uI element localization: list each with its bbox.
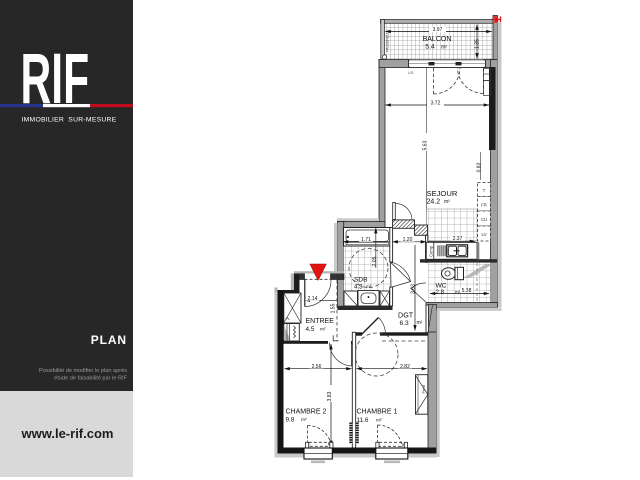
svg-text:Pend: Pend [422, 385, 426, 393]
svg-text:m²: m² [366, 284, 372, 289]
svg-text:m²: m² [441, 45, 447, 51]
svg-text:0.83: 0.83 [477, 162, 483, 172]
svg-text:SDB: SDB [354, 277, 368, 284]
svg-text:5.38: 5.38 [462, 288, 472, 294]
svg-text:Comp: Comp [429, 245, 434, 257]
svg-text:24.2: 24.2 [427, 199, 441, 206]
svg-text:2.05: 2.05 [372, 256, 378, 266]
svg-text:PL: PL [286, 316, 292, 321]
svg-text:m²: m² [376, 418, 382, 424]
svg-text:ENTREE: ENTREE [306, 318, 335, 325]
svg-text:2.14: 2.14 [308, 296, 318, 302]
svg-text:m²: m² [320, 327, 326, 333]
svg-text:3.72: 3.72 [431, 101, 441, 107]
svg-text:m²: m² [444, 199, 450, 205]
svg-text:IMMOBILIER SUR-MESURE: IMMOBILIER SUR-MESURE [22, 117, 117, 124]
svg-text:CU: CU [481, 217, 487, 222]
svg-text:PLAN: PLAN [91, 333, 127, 347]
svg-text:LV: LV [481, 232, 486, 237]
svg-text:L/G: L/G [408, 71, 414, 75]
svg-text:3.83: 3.83 [327, 391, 333, 401]
svg-text:2.8: 2.8 [436, 289, 445, 296]
svg-text:FR: FR [481, 203, 487, 208]
svg-text:4.3: 4.3 [354, 284, 363, 291]
svg-text:m²: m² [301, 417, 307, 423]
svg-text:3.63: 3.63 [411, 284, 417, 294]
svg-text:étude de faisabilité par le RI: étude de faisabilité par le RIF [54, 376, 127, 382]
svg-text:SEJOUR: SEJOUR [427, 189, 458, 198]
svg-text:CHAMBRE 2: CHAMBRE 2 [286, 409, 327, 416]
svg-text:1.35: 1.35 [475, 39, 481, 49]
svg-text:6.3: 6.3 [400, 320, 409, 327]
svg-text:9.8: 9.8 [286, 417, 295, 424]
svg-text:m²: m² [417, 320, 423, 326]
svg-text:5.63: 5.63 [423, 140, 429, 150]
svg-text:1.20: 1.20 [403, 237, 413, 243]
svg-text:1.71: 1.71 [361, 237, 371, 243]
svg-text:www.le-rif.com: www.le-rif.com [21, 426, 114, 441]
svg-text:Possibilité de modifier le pla: Possibilité de modifier le plan après [39, 368, 127, 374]
svg-text:2.56: 2.56 [312, 364, 322, 370]
svg-text:DGT: DGT [398, 311, 414, 320]
svg-text:PASSERELLE: PASSERELLE [386, 29, 390, 52]
svg-text:1.55: 1.55 [331, 303, 337, 313]
svg-text:2.82: 2.82 [400, 364, 410, 370]
svg-text:11.6: 11.6 [357, 417, 369, 424]
svg-text:4.5: 4.5 [306, 326, 315, 333]
svg-text:5.4: 5.4 [425, 44, 435, 51]
svg-text:T: T [483, 188, 486, 193]
svg-text:3.97: 3.97 [433, 27, 443, 33]
svg-text:BALCON: BALCON [423, 36, 452, 43]
svg-text:CHAMBRE 1: CHAMBRE 1 [357, 409, 398, 416]
